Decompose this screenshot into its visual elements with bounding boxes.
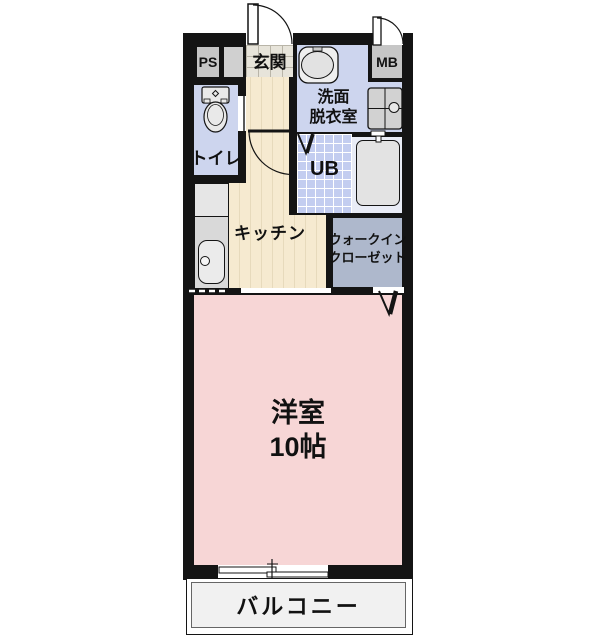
shoe-cabinet [224, 47, 243, 77]
closet-label-2: クローゼット [333, 247, 402, 265]
kitchen-sink-icon [198, 240, 225, 284]
toilet-label: トイレ [194, 145, 238, 167]
closet-label-1: ウォークイン [333, 229, 402, 247]
mb-box: MB [368, 45, 402, 82]
ps-box: PS [197, 47, 219, 77]
bathtub-icon [356, 140, 400, 206]
entrance-label: 玄関 [246, 48, 293, 72]
kitchen-label: キッチン [230, 219, 310, 243]
entrance-door-opening [246, 33, 293, 45]
main-room-label: 洋室 [194, 394, 402, 426]
mb-door-opening [373, 33, 403, 45]
balcony: バルコニー [191, 582, 406, 628]
toilet-door-opening [238, 96, 246, 131]
washroom-label-2: 脱衣室 [297, 104, 370, 125]
main-room-size: 10帖 [194, 428, 402, 460]
floor-plan: 玄関 PS 洗面 脱衣室 MB トイレ UB ウォークイン クローゼット キッチ… [0, 0, 613, 644]
unit-bath-label: UB [297, 156, 352, 182]
kitchen-counter-upper [194, 183, 229, 217]
